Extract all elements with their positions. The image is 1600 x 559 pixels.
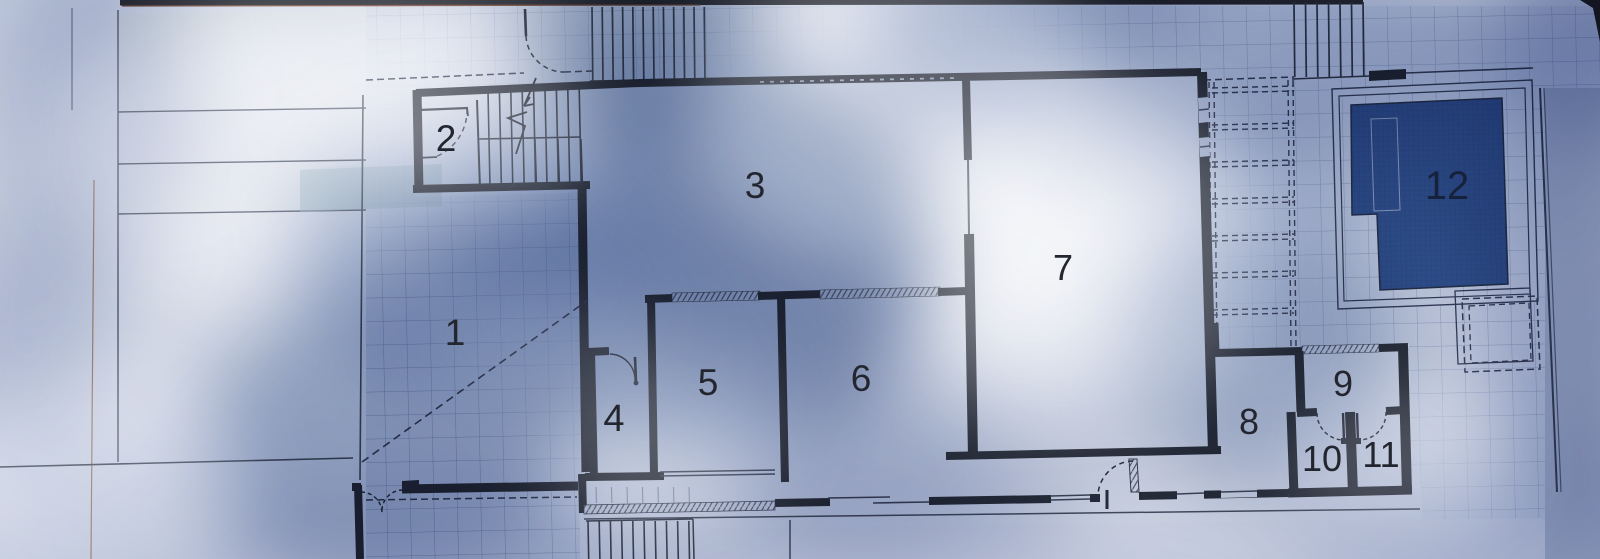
svg-text:1: 1	[445, 312, 466, 353]
svg-text:9: 9	[1333, 363, 1353, 404]
svg-text:3: 3	[745, 165, 766, 206]
svg-text:7: 7	[1053, 247, 1073, 288]
svg-text:12: 12	[1425, 164, 1470, 208]
svg-text:6: 6	[851, 358, 872, 399]
svg-text:4: 4	[603, 398, 624, 440]
svg-text:8: 8	[1239, 401, 1259, 442]
svg-text:11: 11	[1362, 434, 1399, 475]
svg-text:2: 2	[436, 118, 457, 159]
svg-text:10: 10	[1302, 438, 1342, 479]
svg-text:5: 5	[698, 362, 719, 403]
